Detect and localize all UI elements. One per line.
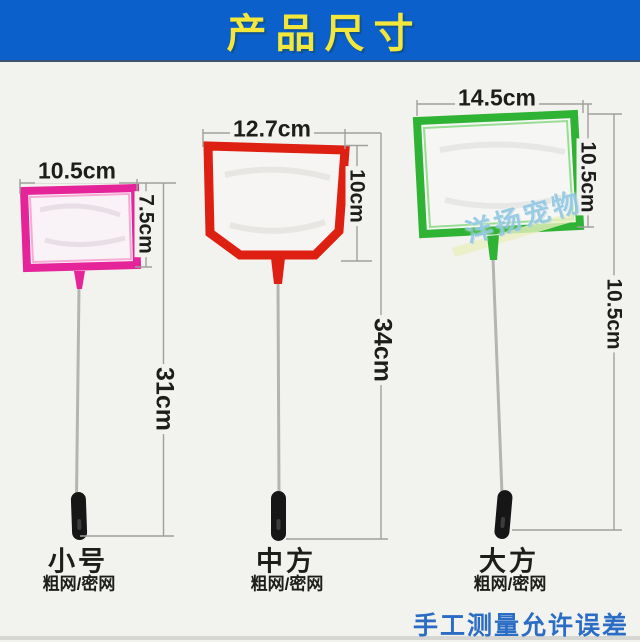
medium-length-label: 34cm xyxy=(369,315,396,385)
medium-net-group xyxy=(208,146,345,541)
medium-handle xyxy=(271,491,286,541)
small-frame xyxy=(24,188,137,268)
small-rod xyxy=(77,288,80,496)
small-width-label: 10.5cm xyxy=(35,159,119,184)
large-net-group xyxy=(417,114,580,540)
small-name-label: 小号 xyxy=(45,548,111,577)
title-banner: 产品尺寸 xyxy=(0,0,640,62)
medium-frame xyxy=(208,146,345,255)
large-handle xyxy=(494,489,513,539)
small-length-label: 31cm xyxy=(151,364,178,434)
medium-rod xyxy=(278,283,279,494)
medium-mesh-label: 粗网/密网 xyxy=(248,575,327,594)
medium-width-label: 12.7cm xyxy=(230,117,314,142)
product-graphics xyxy=(0,0,640,640)
large-rod xyxy=(493,258,502,494)
medium-depth-label: 10cm xyxy=(346,166,369,226)
small-handle xyxy=(71,492,88,540)
medium-name-label: 中方 xyxy=(253,548,319,577)
page-title: 产品尺寸 xyxy=(218,1,423,59)
small-mesh-label: 粗网/密网 xyxy=(40,575,119,594)
small-net-group xyxy=(24,188,137,540)
large-mesh-label: 粗网/密网 xyxy=(471,575,550,594)
product-dimensions-page: { "banner": { "title": "产品尺寸" }, "colors… xyxy=(0,0,640,640)
medium-neck xyxy=(271,258,285,284)
footer-note: 手工测量允许误差 xyxy=(413,606,629,642)
large-name-label: 大方 xyxy=(476,548,542,577)
large-length-label: 10.5cm xyxy=(603,275,626,352)
small-depth-label: 7.5cm xyxy=(135,191,158,257)
small-neck xyxy=(74,271,85,289)
large-width-label: 14.5cm xyxy=(455,86,539,111)
